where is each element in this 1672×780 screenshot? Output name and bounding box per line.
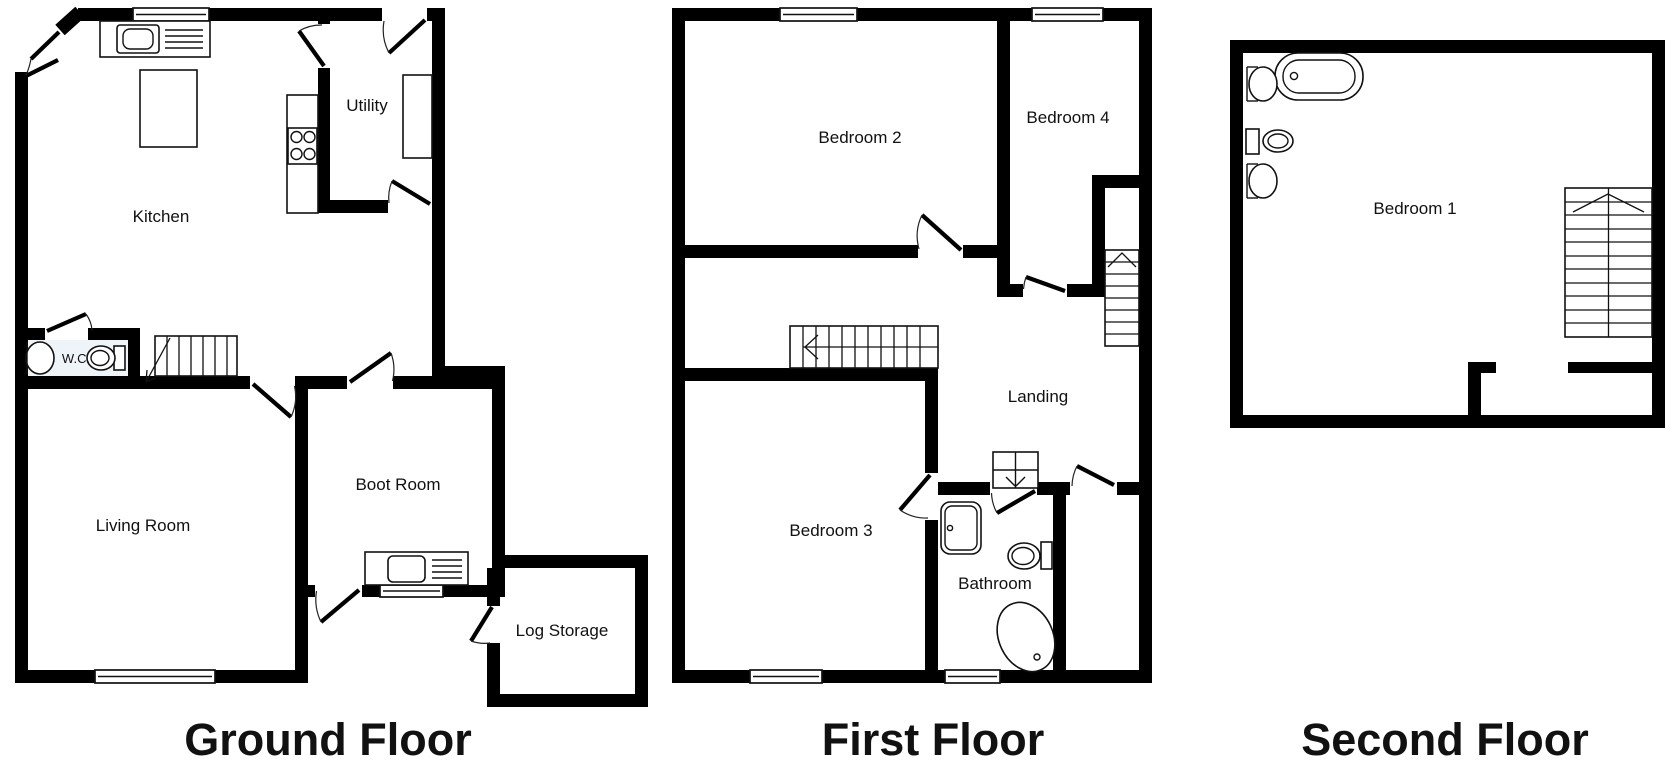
door-swing-icon xyxy=(917,215,961,250)
wc-toilet-icon xyxy=(87,346,125,370)
toilet-icon xyxy=(1246,129,1293,154)
basin-icon xyxy=(1247,67,1277,101)
bathroom-basin-icon xyxy=(941,502,981,554)
room-label-landing: Landing xyxy=(1008,387,1069,406)
shower-icon xyxy=(993,452,1038,488)
staircase-up-icon xyxy=(1105,250,1139,346)
window xyxy=(1032,8,1103,21)
bathroom-toilet-icon xyxy=(1008,542,1052,569)
door-swing-icon xyxy=(389,181,430,204)
room-label-bedroom-2: Bedroom 2 xyxy=(818,128,901,147)
room-label-bedroom-3: Bedroom 3 xyxy=(789,521,872,540)
floor-title-first: First Floor xyxy=(822,714,1045,765)
boot-room-sink-icon xyxy=(365,552,468,585)
second-floor-plan: Bedroom 1 xyxy=(1230,40,1665,428)
room-label-log-storage: Log Storage xyxy=(516,621,609,640)
room-label-bathroom: Bathroom xyxy=(958,574,1032,593)
kitchen-island-icon xyxy=(140,70,197,147)
basin-icon xyxy=(1247,164,1277,198)
window xyxy=(780,8,857,21)
window xyxy=(750,670,822,683)
wc-basin-icon xyxy=(26,342,54,374)
first-floor-plan: Bedroom 2 Bedroom 4 Landing Bedroom 3 Ba… xyxy=(672,8,1152,683)
window xyxy=(133,8,209,21)
kitchen-sink-icon xyxy=(100,21,210,57)
floorplan-page: Kitchen Utility W.C. Living Room Boot Ro… xyxy=(0,0,1672,780)
room-label-kitchen: Kitchen xyxy=(133,207,190,226)
room-label-boot-room: Boot Room xyxy=(355,475,440,494)
window xyxy=(945,670,1000,683)
staircase-down-icon xyxy=(790,326,938,368)
window xyxy=(95,670,215,683)
floor-title-second: Second Floor xyxy=(1301,714,1589,765)
ground-floor-plan: Kitchen Utility W.C. Living Room Boot Ro… xyxy=(15,8,648,707)
room-label-bedroom-4: Bedroom 4 xyxy=(1026,108,1109,127)
corner-double-door-icon xyxy=(26,32,59,76)
floorplan-canvas: Kitchen Utility W.C. Living Room Boot Ro… xyxy=(0,0,1672,780)
room-label-bedroom-1: Bedroom 1 xyxy=(1373,199,1456,218)
room-label-utility: Utility xyxy=(346,96,388,115)
room-label-wc: W.C. xyxy=(62,351,90,366)
staircase-icon xyxy=(1565,188,1652,337)
door-swing-icon xyxy=(383,20,425,53)
utility-appliance-icon xyxy=(403,75,432,158)
bathtub-icon xyxy=(1275,53,1363,100)
staircase-icon xyxy=(146,336,237,382)
hob-icon xyxy=(287,95,318,213)
floor-title-ground: Ground Floor xyxy=(184,714,471,765)
room-label-living-room: Living Room xyxy=(96,516,191,535)
window xyxy=(380,585,443,597)
